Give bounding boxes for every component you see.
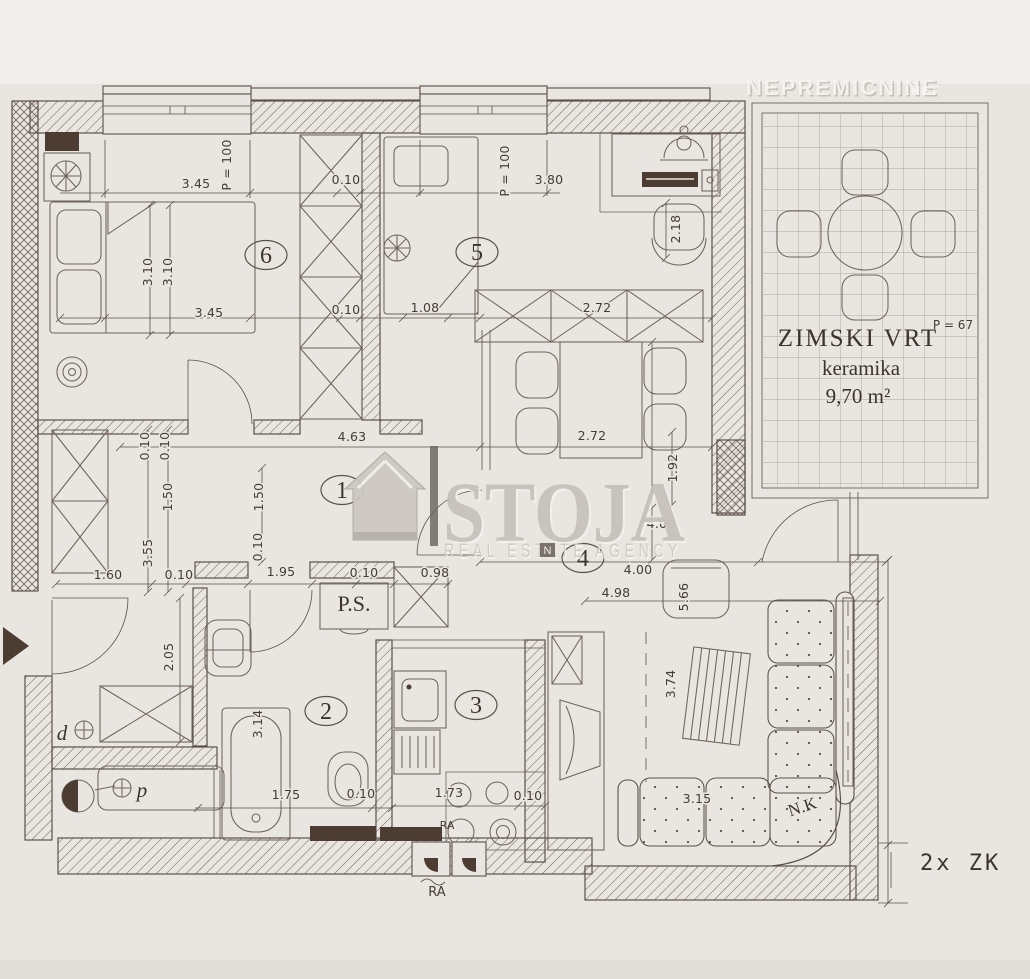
dimension-label: 3.55	[140, 539, 155, 568]
dimension-label: 0.10	[350, 565, 379, 580]
wall-bottom-a	[58, 838, 592, 874]
dimension-label: 3.10	[140, 258, 155, 287]
dimension-label: 5.66	[676, 583, 691, 612]
dimension-label: 1.73	[435, 785, 464, 800]
dimension-label: 3.14	[250, 710, 265, 739]
dimension-label: 0.10	[157, 432, 172, 461]
wall-left	[12, 101, 38, 591]
dimension-label: 0.10	[250, 533, 265, 562]
dimension-label: 2.18	[668, 215, 683, 244]
pantry-label: P.S.	[337, 591, 370, 616]
window-room5	[420, 86, 547, 134]
dimension-label: 0.98	[421, 565, 450, 580]
dimension-label: 1.50	[160, 483, 175, 512]
winter-garden-area-code: P = 67	[933, 318, 973, 332]
room-number: 3	[470, 693, 482, 719]
dimension-label: 1.60	[94, 567, 123, 582]
shutter-box-b	[547, 88, 710, 100]
shutter-box-a	[251, 88, 420, 100]
dimension-label: 1.95	[267, 564, 296, 579]
floor-plan-drawing: ZIMSKI VRT P = 67 keramika 9,70 m² 3.45P…	[0, 0, 1030, 979]
dimension-label: P = 100	[497, 145, 512, 196]
winter-garden: ZIMSKI VRT P = 67 keramika 9,70 m²	[752, 103, 988, 498]
wall-bottom-b	[585, 866, 856, 900]
vent-ra-label: RA	[428, 885, 446, 900]
dimension-label: 4.00	[624, 562, 653, 577]
valve-icon-d	[75, 721, 93, 739]
dimension-label: 0.10	[514, 788, 543, 803]
dimension-label: 2.05	[161, 643, 176, 672]
dimension-label: 0.10	[347, 786, 376, 801]
dimension-label: 0.10	[332, 172, 361, 187]
paper-bottom-shadow	[0, 960, 1030, 979]
dimension-label: 3.45	[182, 176, 211, 191]
window-sill-dark-a	[310, 826, 376, 841]
pillar-dining	[717, 440, 745, 515]
cabinet-dark	[45, 132, 79, 151]
wall-room5-hall	[380, 420, 422, 434]
stove-ra-label: RA	[440, 819, 455, 832]
dimension-label: 3.15	[683, 791, 712, 806]
dimension-label: 3.10	[160, 258, 175, 287]
stoja-n-letter: N	[544, 545, 552, 557]
dimension-label: 2.72	[578, 428, 607, 443]
wall-kitchen-living	[525, 640, 545, 862]
window-sill-dark-b	[380, 827, 442, 841]
winter-garden-title: ZIMSKI VRT	[778, 325, 938, 352]
dimension-label: 2.72	[583, 300, 612, 315]
wg-tile-floor	[763, 114, 977, 487]
room-number: 5	[471, 240, 483, 266]
dimension-label: 0.10	[137, 432, 152, 461]
drain-label: d	[57, 721, 68, 745]
wall-room6-hall-b	[254, 420, 300, 434]
dimension-label: 1.08	[411, 300, 440, 315]
paper-top-light	[0, 0, 1030, 84]
wheel-icon	[384, 235, 410, 261]
wall-hall-bottom-a	[195, 562, 248, 578]
floor-plan-photo: ZIMSKI VRT P = 67 keramika 9,70 m² 3.45P…	[0, 0, 1030, 979]
dimension-label: 4.63	[338, 429, 367, 444]
winter-garden-area: 9,70 m²	[826, 384, 891, 408]
stoja-tagline: REAL ESTATE AGENCY	[444, 541, 682, 562]
dimension-label: P = 100	[219, 139, 234, 190]
wall-wardrobe-strip	[362, 133, 380, 420]
room-number: 1	[336, 478, 348, 504]
dimension-label: 3.80	[535, 172, 564, 187]
portal-watermark-suffix: .NET	[906, 83, 940, 98]
window-room6	[103, 86, 251, 134]
dimension-label: 0.10	[332, 302, 361, 317]
dimension-label: 0.10	[165, 567, 194, 582]
dimension-label: 1.50	[251, 483, 266, 512]
winter-garden-material: keramika	[822, 356, 901, 380]
room-number: 2	[320, 699, 332, 725]
keys-label: 2x ZK	[920, 851, 1001, 876]
room-number: 6	[260, 243, 272, 269]
dimension-label: 3.74	[663, 670, 678, 699]
dimension-label: 4.98	[602, 585, 631, 600]
stoja-n-mark: N	[540, 543, 555, 557]
valve-icon-p	[113, 779, 131, 797]
wall-left-lower	[25, 676, 52, 840]
dimension-label: 1.75	[272, 787, 301, 802]
dimension-label: 3.45	[195, 305, 224, 320]
washer-label: p	[135, 778, 148, 802]
stoja-divider-bar	[430, 446, 438, 546]
